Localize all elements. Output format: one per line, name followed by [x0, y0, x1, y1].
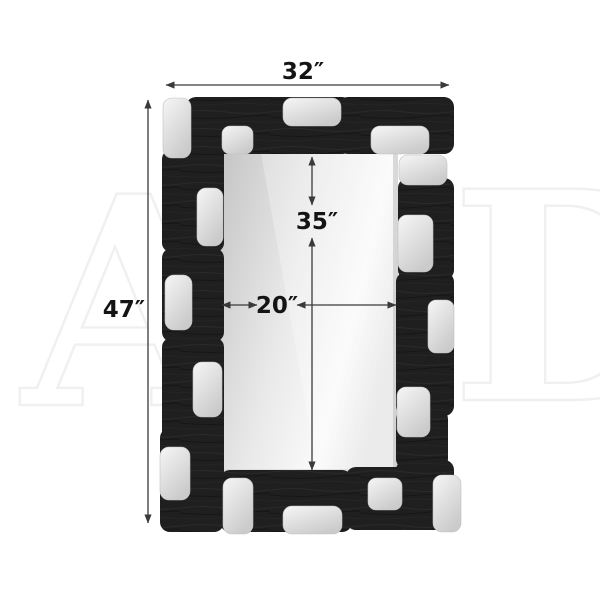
silver-accent-block	[283, 506, 342, 534]
silver-accent-block	[283, 98, 341, 126]
mirror-diagram-svg: A D	[0, 0, 600, 600]
mirror-width-label: 20″	[256, 293, 298, 319]
watermark-letter-right: D	[450, 129, 600, 469]
overall-height-label: 47″	[103, 297, 145, 323]
silver-accent-block	[160, 447, 190, 500]
silver-accent-block	[165, 275, 192, 330]
silver-accent-block	[223, 478, 253, 534]
frame-block	[162, 150, 202, 252]
mirror-glass	[220, 148, 398, 473]
overall-width-label: 32″	[282, 59, 324, 85]
silver-accent-block	[197, 188, 223, 246]
silver-accent-block	[433, 475, 461, 532]
silver-accent-block	[399, 155, 447, 185]
silver-accent-block	[398, 215, 433, 272]
silver-accent-block	[368, 478, 402, 510]
silver-accent-block	[222, 126, 253, 154]
silver-accent-block	[163, 98, 191, 158]
product-dimension-diagram: A D	[0, 0, 600, 600]
overall-width-dimension: 32″	[166, 59, 449, 85]
silver-accent-block	[193, 362, 222, 417]
silver-accent-block	[428, 300, 454, 353]
silver-accent-block	[397, 387, 430, 437]
silver-accent-block	[371, 126, 429, 154]
mirror-height-label: 35″	[296, 209, 338, 235]
